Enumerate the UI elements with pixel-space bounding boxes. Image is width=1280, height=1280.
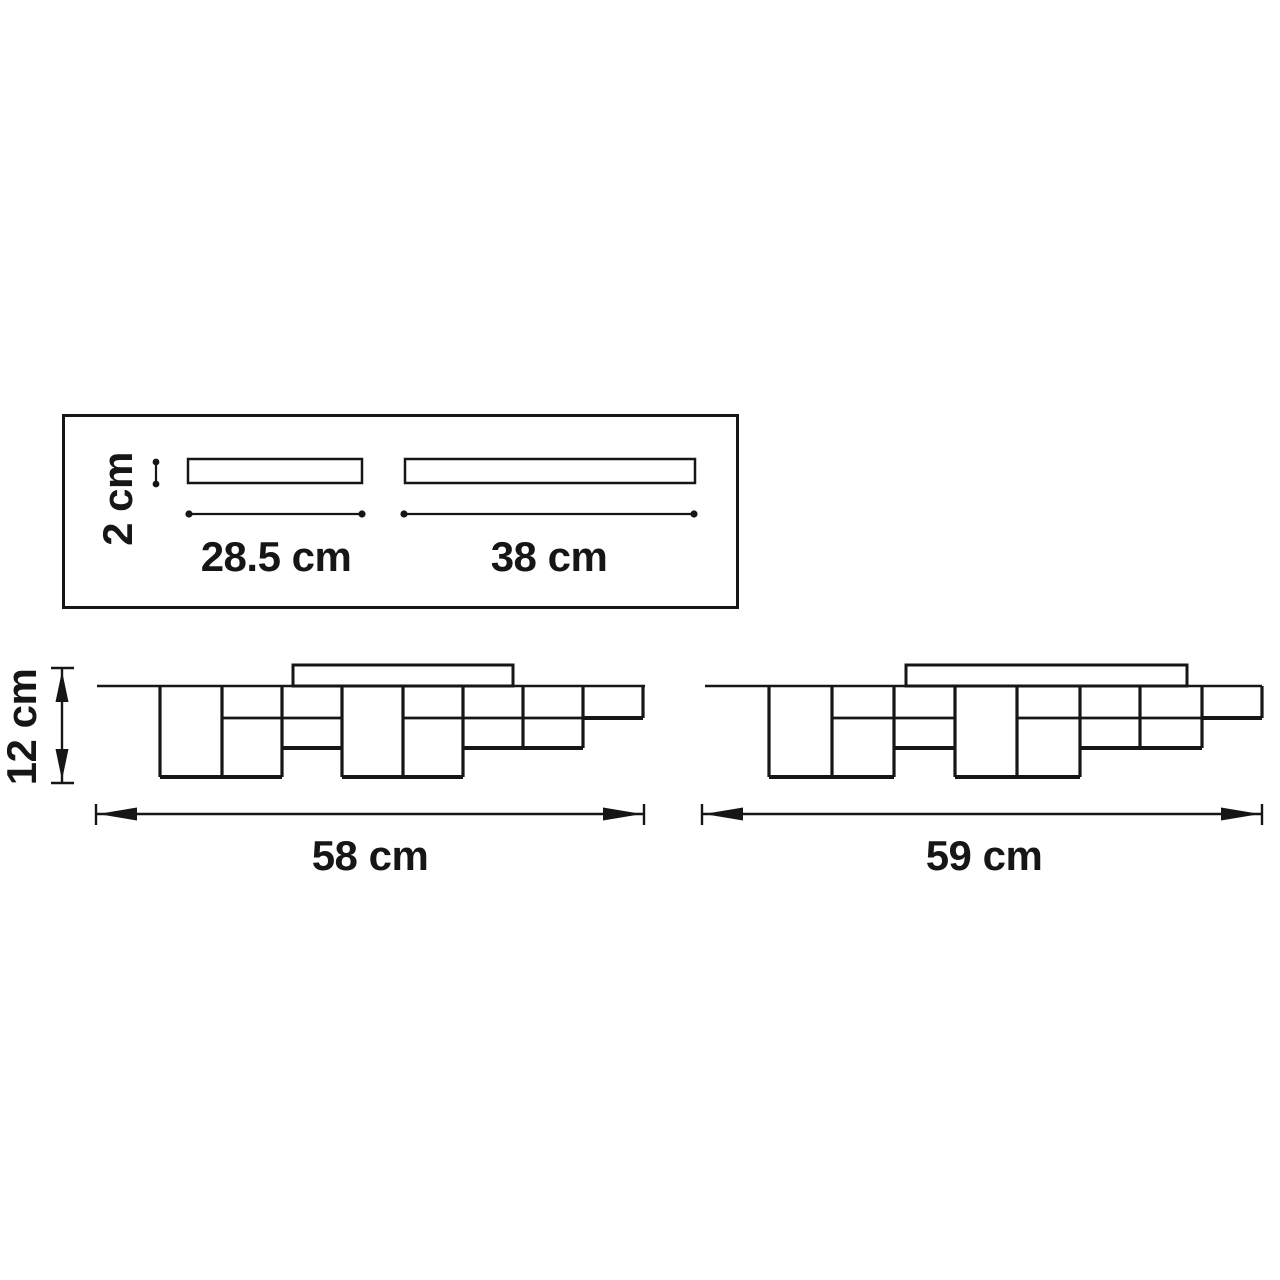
- dim-2cm-marker: [153, 459, 160, 488]
- arrow-right: [603, 808, 642, 821]
- right-canopy: [906, 665, 1187, 686]
- dim-59cm-line: [702, 804, 1262, 825]
- top-view-border: [64, 416, 738, 608]
- top-view-group: [64, 416, 738, 608]
- dim-58cm-line: [96, 804, 644, 825]
- mounting-bar-1: [188, 459, 362, 483]
- dimension-diagram: 2 cm 28.5 cm 38 cm 12 cm 58 cm 59 cm: [0, 0, 1280, 1280]
- arrow-up: [56, 671, 69, 702]
- dim-38cm-line: [400, 510, 697, 517]
- arrow-left: [98, 808, 137, 821]
- left-cubes-verticals: [160, 686, 643, 777]
- mounting-bar-2: [405, 459, 695, 483]
- arrow-left: [704, 808, 743, 821]
- bar-thickness-label: 2 cm: [97, 452, 139, 546]
- dim-28-5cm-line: [185, 510, 365, 517]
- right-fixture-width-label: 59 cm: [926, 835, 1043, 877]
- right-cubes-verticals: [769, 686, 1262, 777]
- bar1-length-label: 28.5 cm: [201, 536, 352, 578]
- fixture-height-label: 12 cm: [1, 669, 43, 786]
- arrow-right: [1221, 808, 1260, 821]
- right-side-view-group: [702, 665, 1262, 825]
- left-canopy: [293, 665, 513, 686]
- left-fixture-width-label: 58 cm: [312, 835, 429, 877]
- arrow-down: [56, 749, 69, 780]
- left-side-view-group: [51, 665, 645, 825]
- dim-12cm-line: [51, 668, 74, 783]
- diagram-linework: [0, 0, 1280, 1280]
- bar2-length-label: 38 cm: [491, 536, 608, 578]
